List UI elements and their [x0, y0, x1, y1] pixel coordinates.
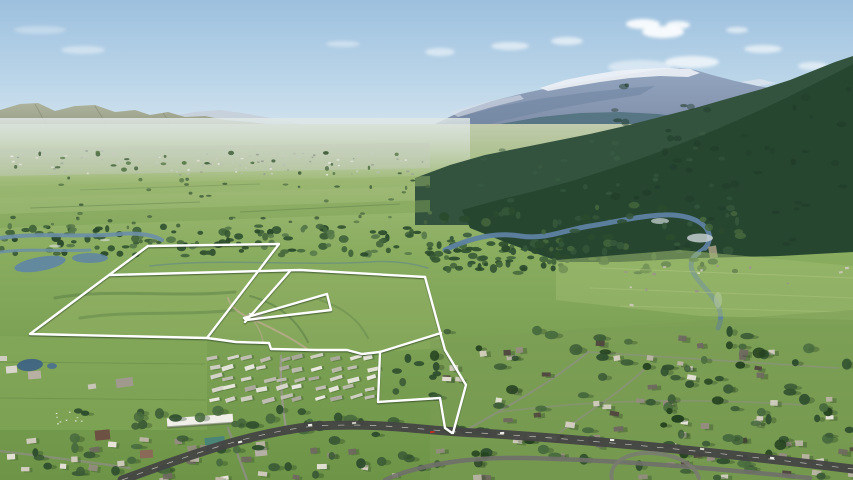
river-main-item [651, 218, 669, 224]
clouds-item [61, 46, 105, 54]
pond-item [47, 363, 57, 369]
vehicles-item [610, 439, 614, 441]
farm-buildings-left-item [0, 356, 7, 361]
strip-mall-item [140, 450, 154, 459]
clouds-item [14, 26, 66, 34]
river-channels-left-item [49, 245, 61, 248]
vehicles-item [430, 431, 435, 433]
farm-buildings-left-item [28, 370, 42, 379]
clouds-item [551, 37, 583, 45]
farm-buildings-left-item [6, 366, 18, 374]
clouds-item [726, 27, 748, 33]
river-channels-left-item [0, 250, 90, 252]
clouds-item [326, 41, 360, 47]
river-main-item [687, 234, 713, 243]
strip-mall-item [95, 429, 111, 441]
clouds-item [425, 48, 455, 56]
aerial-property-photo [0, 0, 853, 480]
clouds-item [491, 42, 529, 50]
clouds-item [665, 56, 719, 68]
river-channels-left-item [72, 253, 108, 263]
river-channels-left-item [100, 239, 110, 241]
clouds-item [666, 21, 690, 29]
vehicles-item [500, 432, 504, 434]
clouds-item [744, 45, 782, 53]
photo-canvas [0, 0, 853, 480]
vehicles-item [560, 435, 564, 437]
